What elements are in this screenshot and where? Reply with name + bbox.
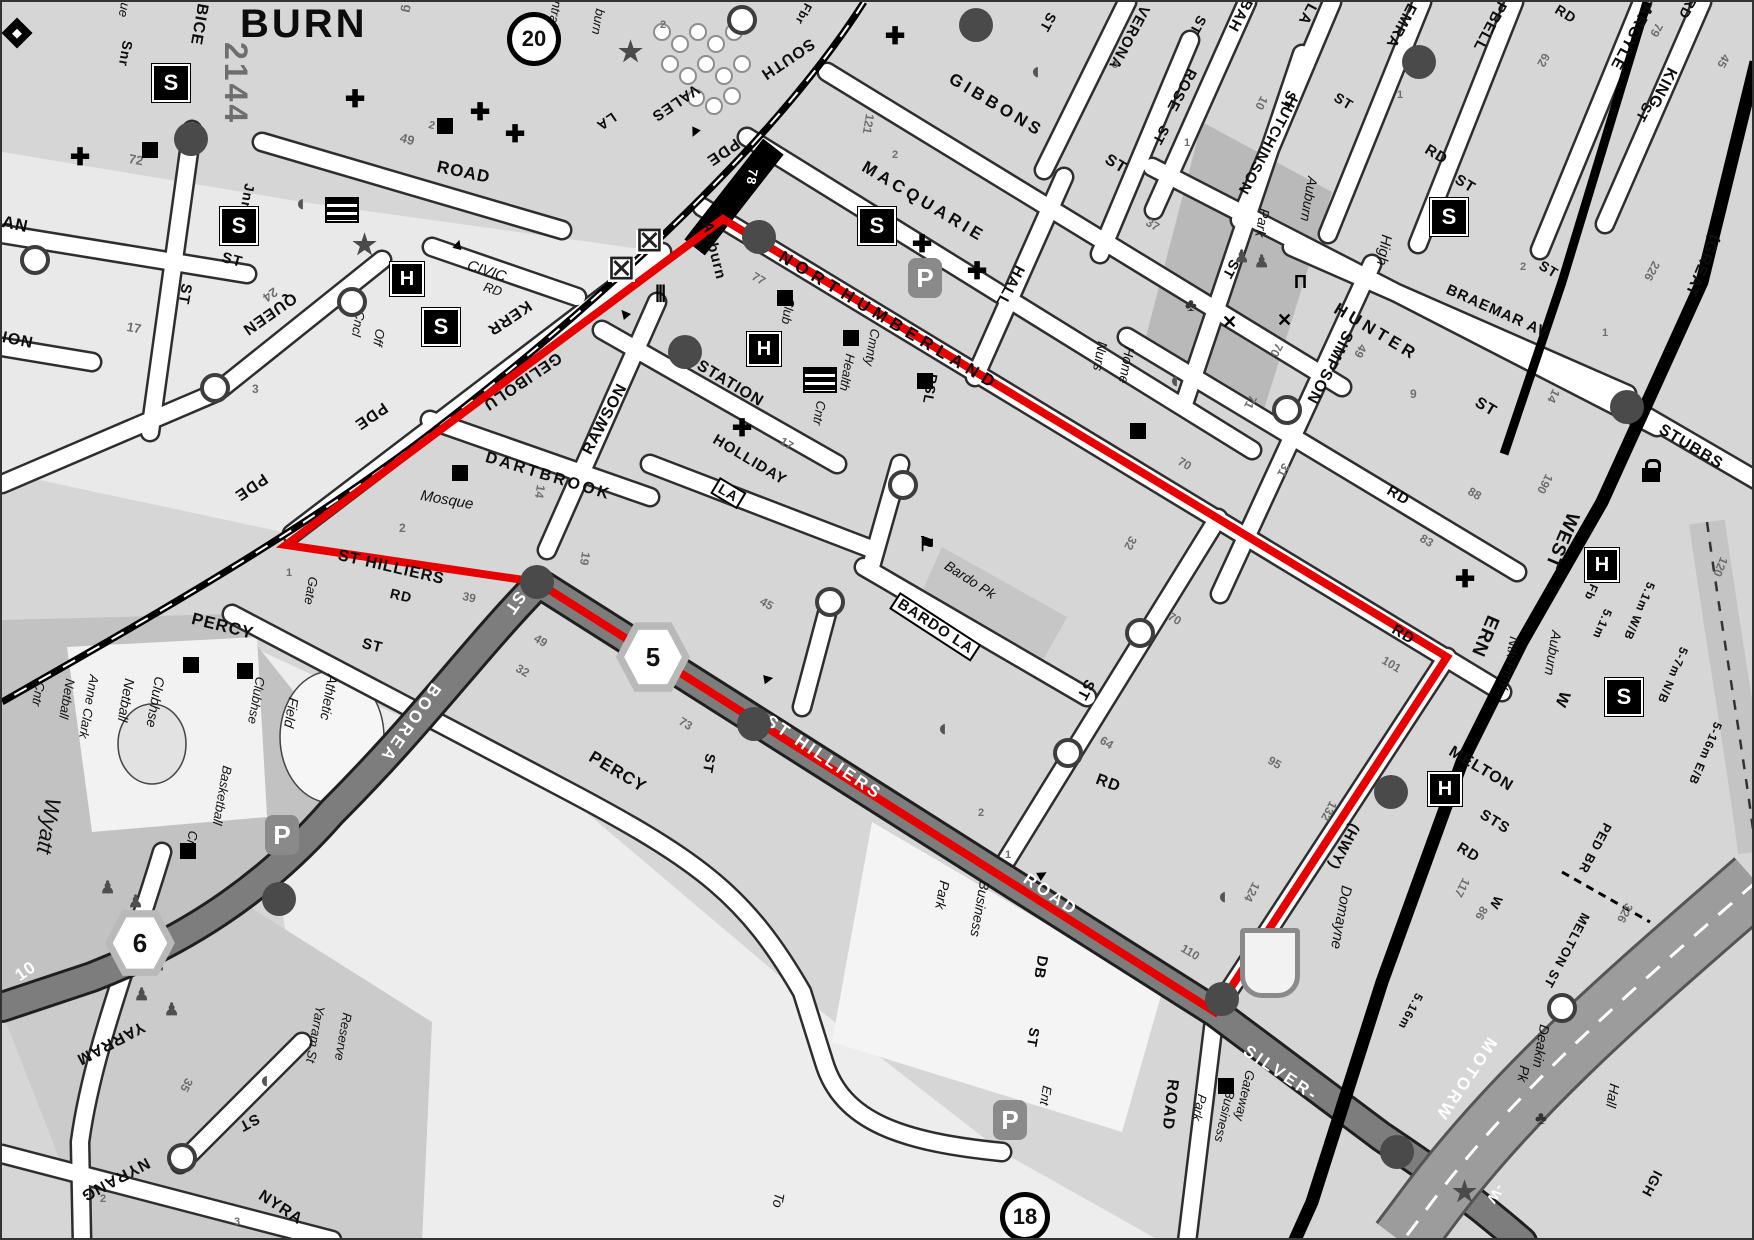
- people-icon: ♟: [164, 1000, 179, 1020]
- shieldcross-icon: [1240, 928, 1300, 998]
- map-label-reserve: Reserve: [333, 1012, 354, 1062]
- map-label-1: 1: [1602, 328, 1608, 339]
- map-label-83: 83: [1418, 532, 1436, 549]
- map-label-226: 226: [1642, 259, 1662, 282]
- map-label-37: 37: [1144, 216, 1162, 233]
- church-icon: ✚: [70, 143, 90, 172]
- map-label-percy: PERCY: [586, 748, 649, 795]
- traffic-signal-icon: [174, 122, 208, 156]
- map-label-71: 71: [1242, 393, 1259, 410]
- traffic-signal-icon: [1380, 1135, 1414, 1169]
- map-label-1: 1: [1397, 90, 1403, 101]
- map-label-78: 78: [744, 168, 760, 186]
- parking-icon: P: [993, 1100, 1027, 1140]
- map-label-clubhse: Clubhse: [144, 676, 167, 729]
- map-label-argyle: ARGYLE: [1607, 0, 1655, 72]
- map-label-st: ST: [1472, 395, 1499, 420]
- map-label-st: ST: [176, 282, 194, 305]
- traffic-signal-icon: [1205, 982, 1239, 1016]
- map-label-dartbrook: DARTBROOK: [483, 450, 613, 504]
- map-label-st-hilliers: ST HILLIERS: [762, 712, 885, 803]
- roundabout-icon: [200, 373, 230, 403]
- map-label-120: 120: [1711, 555, 1730, 578]
- map-label-ped-br: PED BR: [1577, 821, 1614, 876]
- gate-icon: |||: [655, 282, 664, 303]
- map-label-pde: PDE: [351, 399, 390, 432]
- lock-icon: [1642, 468, 1660, 482]
- tree-icon: ♣: [1535, 1108, 1547, 1129]
- map-label-88: 88: [1466, 485, 1484, 502]
- map-label-1: 1: [1184, 138, 1190, 149]
- map-label-79: 79: [1648, 21, 1665, 38]
- arrow-icon: ▲: [684, 120, 706, 143]
- xbox-icon: ☒: [608, 258, 635, 282]
- map-label-35: 35: [178, 1076, 195, 1093]
- map-label-fbr: Fbr: [793, 1, 814, 26]
- route-shield-18-icon: 18: [1000, 1192, 1050, 1240]
- map-label-melton-st: MELTON ST: [1542, 911, 1592, 990]
- books-icon: [325, 197, 359, 223]
- blacksq-icon: [183, 657, 199, 673]
- eye-icon: ◖: [293, 190, 308, 218]
- map-label-rd: RD: [1389, 622, 1417, 647]
- map-label-5-1m: 5.1m: [1591, 607, 1614, 641]
- map-label-62: 62: [1535, 51, 1552, 68]
- map-label-49: 49: [532, 632, 550, 649]
- map-label-la: LA: [1295, 1, 1319, 27]
- map-label-w: W: [1551, 689, 1572, 710]
- map-label-rd: RD: [1553, 2, 1579, 25]
- map-label-vales: VALES: [649, 82, 702, 125]
- church-icon: ✚: [912, 230, 932, 259]
- traffic-signal-icon: [737, 707, 771, 741]
- school-icon: S: [422, 308, 460, 346]
- star-icon: ★: [618, 35, 643, 68]
- map-label-nurs: Nurs: [1091, 341, 1110, 373]
- map-label-health: Health: [838, 353, 857, 392]
- map-label-st: ST: [1332, 90, 1356, 112]
- church-icon: ✚: [345, 85, 365, 114]
- map-label-9: 9: [1410, 388, 1417, 400]
- map-label-auburn: Auburn: [1542, 630, 1564, 677]
- map-label-road: ROAD: [1159, 1078, 1180, 1131]
- traffic-signal-icon: [959, 8, 993, 42]
- map-label-77: 77: [750, 270, 768, 287]
- map-label-park: Park: [933, 880, 952, 911]
- map-label-netball: Netball: [116, 678, 137, 723]
- map-label-anne-clark: Anne Clark: [77, 674, 101, 740]
- map-label-39: 39: [461, 590, 477, 605]
- map-label-rd: RD: [1094, 772, 1123, 796]
- map-label-5-7m-n-b: 5-7m N/B: [1656, 645, 1690, 705]
- church-icon: ✚: [470, 98, 490, 127]
- eye-icon: ◖: [1167, 367, 1182, 395]
- street-map: BURN2144ueSnrBICEJnrg492ROAD72ANSTST17IO…: [0, 0, 1754, 1240]
- map-label-percy: PERCY: [190, 610, 256, 642]
- map-label-110: 110: [1179, 942, 1202, 962]
- map-label-2: 2: [1520, 262, 1526, 273]
- map-label-132: 132: [1319, 799, 1339, 822]
- map-label-deakin: Deakin: [1531, 1024, 1552, 1069]
- map-label-rd: RD: [389, 586, 414, 605]
- traffic-signal-icon: [668, 335, 702, 369]
- flag-icon: ⚑: [918, 532, 936, 557]
- map-label-3: 3: [252, 383, 259, 395]
- map-label-field: Field: [282, 697, 301, 729]
- map-label-1: 1: [1005, 850, 1011, 861]
- route-shield-5-icon: 5: [616, 620, 690, 694]
- map-label-st: ST: [360, 636, 384, 656]
- map-label-st: ST: [1102, 152, 1129, 177]
- map-label-rd: RD: [1422, 142, 1450, 167]
- map-label-la: LA: [710, 477, 746, 509]
- parking-icon: P: [908, 258, 942, 298]
- traffic-signal-icon: [520, 565, 554, 599]
- church-icon: ✚: [732, 414, 752, 443]
- traffic-signal-icon: [262, 882, 296, 916]
- route-shield-number: 6: [113, 916, 168, 971]
- map-label-86: 86: [1473, 904, 1490, 921]
- map-label-pk: Pk: [1515, 1065, 1532, 1084]
- blacksq-icon: [142, 142, 158, 158]
- map-label-70: 70: [1176, 455, 1194, 472]
- map-label-70: 70: [1268, 341, 1285, 358]
- map-label-park: Park: [1253, 208, 1272, 239]
- map-label-2: 2: [399, 522, 406, 534]
- map-label-sts: STS: [1477, 807, 1512, 836]
- people-icon: ♟: [128, 892, 143, 912]
- roundabout-icon: [337, 287, 367, 317]
- map-label-3: 3: [234, 1217, 240, 1228]
- map-label-5-1m-w-b: 5.1m W/B: [1622, 580, 1657, 642]
- people-icon: ♟: [134, 985, 149, 1005]
- school-icon: S: [1430, 198, 1468, 236]
- map-label-pde: PDE: [703, 135, 742, 168]
- roundabout-icon: [1053, 738, 1083, 768]
- map-label-14: 14: [533, 484, 547, 499]
- map-label-17: 17: [778, 435, 796, 452]
- map-label-121: 121: [861, 113, 876, 135]
- map-label-31: 31: [1275, 461, 1292, 478]
- roundabout-icon: [1272, 395, 1302, 425]
- blacksq-icon: [1130, 423, 1146, 439]
- map-label-motorw: MOTORW: [1432, 1034, 1500, 1124]
- blacksq-icon: [437, 118, 453, 134]
- map-label-st: ST: [701, 753, 718, 775]
- map-label-ent: Ent: [1038, 1085, 1054, 1106]
- map-label-burn: BURN: [240, 4, 368, 44]
- map-label-emra: EMRA: [1383, 1, 1419, 51]
- roundabout-icon: [20, 245, 50, 275]
- people-icon: ♟: [1234, 247, 1249, 267]
- map-label-cmnty: Cmnty: [863, 328, 882, 367]
- map-label-yarram: YARRAM: [73, 1018, 147, 1067]
- map-label-rose: ROSE: [1164, 66, 1199, 114]
- map-label-boorea: BOOREA: [377, 680, 444, 766]
- church-icon: ✚: [885, 22, 905, 51]
- map-label-basketball: Basketball: [211, 765, 234, 826]
- map-label-190: 190: [1535, 472, 1555, 495]
- traffic-signal-icon: [1610, 390, 1644, 424]
- map-label-10: 10: [1253, 94, 1270, 111]
- map-label-off: Off: [371, 328, 387, 347]
- map-label-73: 73: [677, 715, 695, 732]
- map-label-g: g: [401, 4, 415, 14]
- map-label-road: ROAD: [435, 158, 491, 186]
- map-label-ue: ue: [117, 2, 132, 19]
- map-label-nyra: NYRA: [255, 1188, 305, 1228]
- map-label-10: 10: [12, 958, 39, 984]
- roundabout-icon: [888, 470, 918, 500]
- books-icon: [803, 367, 837, 393]
- hospital-icon: H: [1585, 548, 1619, 582]
- school-icon: S: [220, 207, 258, 245]
- hospital-icon: H: [747, 332, 781, 366]
- church-icon: ✚: [967, 257, 987, 286]
- blacksq-icon: [777, 290, 793, 306]
- map-label-to: To: [771, 1192, 787, 1209]
- map-label-101: 101: [1380, 654, 1403, 675]
- hospital-icon: H: [1428, 772, 1462, 806]
- map-label-326: 326: [1615, 901, 1635, 924]
- roundabout-icon: [1125, 618, 1155, 648]
- map-label-cntr: Cntr: [811, 400, 828, 426]
- eye-icon: ◖: [1215, 883, 1230, 911]
- map-label-park: Park: [1190, 1093, 1209, 1122]
- blacksq-icon: [1218, 1078, 1234, 1094]
- map-label-la: LA: [594, 110, 619, 133]
- blacksq-icon: [843, 330, 859, 346]
- map-label-rd: RD: [1384, 483, 1412, 508]
- map-label-hall: Hall: [1604, 1083, 1622, 1109]
- map-label-rawson: RAWSON: [580, 381, 631, 457]
- map-label-3: 3: [1112, 60, 1118, 71]
- map-label-2144: 2144: [220, 42, 252, 125]
- map-label-braemar-av: BRAEMAR AV: [1444, 282, 1551, 340]
- map-label-west: WEST: [1542, 510, 1583, 572]
- map-label-2: 2: [892, 150, 898, 161]
- map-label-ion: ION: [1, 330, 35, 352]
- map-label-19: 19: [578, 551, 592, 566]
- map-label-nth-pmy: Nth Pmy: [1499, 636, 1522, 691]
- map-label-st: ST: [1187, 13, 1209, 37]
- parking-icon: P: [265, 815, 299, 855]
- labels-layer: BURN2144ueSnrBICEJnrg492ROAD72ANSTST17IO…: [2, 2, 1752, 1238]
- map-label-2: 2: [100, 1194, 106, 1205]
- route-shield-20-icon: 20: [507, 12, 561, 66]
- church-icon: ✚: [1455, 565, 1475, 594]
- map-label-athletic: Athletic: [318, 674, 340, 722]
- map-label-bardo-la: BARDO LA: [889, 592, 981, 662]
- map-label-great: (GREAT: [1681, 232, 1722, 299]
- map-label-high: High: [1374, 233, 1394, 266]
- tree-icon: ♣: [1185, 295, 1197, 316]
- map-label-49: 49: [1352, 342, 1369, 359]
- map-label-w: -W: [1484, 1182, 1507, 1206]
- map-label-auburn: Auburn: [1298, 176, 1320, 223]
- map-label-st: ST: [1537, 258, 1561, 280]
- eye-icon: ◖: [935, 715, 950, 743]
- map-label-1: 1: [286, 568, 292, 579]
- arrow-icon: ▲: [613, 302, 637, 326]
- map-label-70: 70: [1166, 610, 1184, 627]
- route-shield-number: 5: [624, 628, 682, 686]
- map-label-gate: Gate: [302, 576, 320, 606]
- map-label-32: 32: [1122, 534, 1139, 551]
- roundabout-icon: [727, 5, 757, 35]
- map-label-lidcombe: Lidcombe: [0, 757, 4, 819]
- map-label-5-16m: 5.16m: [1396, 991, 1425, 1031]
- map-label-32: 32: [514, 662, 532, 679]
- school-icon: S: [152, 64, 190, 102]
- people-icon: ♟: [1254, 252, 1269, 272]
- blacksq-icon: [917, 373, 933, 389]
- map-label-an: AN: [0, 213, 30, 235]
- map-label-14: 14: [1545, 387, 1562, 404]
- map-label-2: 2: [427, 120, 436, 132]
- map-label-95: 95: [1266, 754, 1284, 771]
- map-label-igh: IGH: [1640, 1168, 1665, 1199]
- roundabout-icon: [167, 1143, 197, 1173]
- map-label-nyrang: NYRANG: [78, 1154, 152, 1203]
- map-label-netball: Netball: [57, 678, 77, 720]
- map-label-burn: burn: [590, 8, 607, 36]
- map-label-domayne: Domayne: [1328, 884, 1354, 950]
- blacksq-icon: [237, 663, 253, 679]
- diamond-icon: [1, 17, 32, 48]
- eye-icon: ◖: [1028, 58, 1043, 86]
- people-icon: ♟: [100, 878, 115, 898]
- map-label-fb: Fb: [1582, 582, 1600, 602]
- map-label-business: Business: [968, 880, 992, 938]
- map-label-gelibolu: GELIBOLU: [480, 349, 564, 413]
- hospital-icon: H: [390, 262, 424, 296]
- star-icon: ★: [1452, 1175, 1477, 1208]
- map-label-wyatt: Wyatt: [33, 796, 64, 855]
- map-label-st: ST: [1037, 10, 1059, 34]
- map-label-clubhse: Clubhse: [246, 676, 267, 725]
- map-label-pbell: PBELL: [1470, 0, 1509, 54]
- map-label-st: ST: [1074, 677, 1097, 703]
- map-label-st: ST: [236, 1111, 262, 1134]
- map-label-rd: RD: [1454, 840, 1482, 865]
- map-label-rd: RD: [1676, 0, 1699, 22]
- arrow-icon: ▲: [448, 234, 468, 255]
- map-label-simpson: SIMPSON: [1303, 327, 1355, 406]
- fountain-icon: Π: [1294, 272, 1307, 293]
- traffic-signal-icon: [1402, 45, 1436, 79]
- blacksq-icon: [180, 843, 196, 859]
- map-label-bah: BAH: [1225, 0, 1255, 34]
- map-label-45: 45: [1715, 52, 1732, 69]
- map-label-ern: ERN: [1468, 613, 1502, 660]
- church-icon: ✚: [505, 120, 525, 149]
- map-label-st: ST: [220, 250, 244, 270]
- map-label-st: ST: [1025, 1027, 1042, 1049]
- map-label-king: KING: [1644, 64, 1679, 110]
- map-label-49: 49: [399, 131, 416, 147]
- map-label-kerr: KERR: [484, 297, 534, 338]
- map-label-jnr: Jnr: [239, 183, 257, 210]
- map-label-auburn: Auburn: [699, 220, 728, 281]
- map-label-2: 2: [660, 20, 666, 31]
- map-label-south: SOUTH: [757, 35, 817, 82]
- eye-icon: ◖: [257, 1067, 272, 1095]
- map-label-st: ST: [1452, 172, 1478, 196]
- star-icon: ★: [352, 228, 377, 261]
- map-label-pde: PDE: [231, 470, 270, 503]
- map-label-117: 117: [1452, 876, 1472, 899]
- map-label-yarram-st: Yarram St: [304, 1005, 327, 1064]
- arrow-icon: ▲: [758, 670, 778, 689]
- map-label-17: 17: [126, 320, 143, 335]
- roundabout-icon: [1547, 993, 1577, 1023]
- map-label-mosque: Mosque: [419, 488, 474, 512]
- school-icon: S: [858, 207, 896, 245]
- map-label-stubbs: STUBBS: [1656, 422, 1726, 473]
- blacksq-icon: [452, 465, 468, 481]
- map-label-45: 45: [758, 595, 776, 612]
- map-label-db: DB: [1031, 954, 1050, 980]
- map-label-bice: BICE: [187, 2, 210, 46]
- picnic-icon: ✕: [1277, 310, 1292, 331]
- map-label-st: ST: [1150, 123, 1172, 147]
- map-label-5-16m-e-b: 5-16m E/B: [1687, 720, 1724, 786]
- traffic-signal-icon: [1374, 775, 1408, 809]
- map-label-rd: RD: [482, 280, 504, 298]
- map-label-64: 64: [1098, 734, 1116, 751]
- map-label-2: 2: [978, 808, 984, 819]
- map-label-cntr: Cntr: [30, 681, 47, 707]
- map-label-124: 124: [1242, 880, 1262, 903]
- map-label-snr: Snr: [117, 40, 135, 68]
- map-label-st-hilliers: ST HILLIERS: [336, 548, 446, 588]
- school-icon: S: [1605, 678, 1643, 716]
- map-label-home: Home: [1117, 346, 1137, 385]
- map-label-hall: HALL: [993, 263, 1027, 309]
- roundabout-icon: [815, 587, 845, 617]
- traffic-signal-icon: [742, 220, 776, 254]
- map-label-bardo-pk: Bardo Pk: [942, 558, 998, 601]
- map-label-hwy: (HWY): [1325, 821, 1362, 872]
- xbox-icon: ☒: [636, 230, 663, 254]
- picnic-icon: ✕: [1222, 312, 1237, 333]
